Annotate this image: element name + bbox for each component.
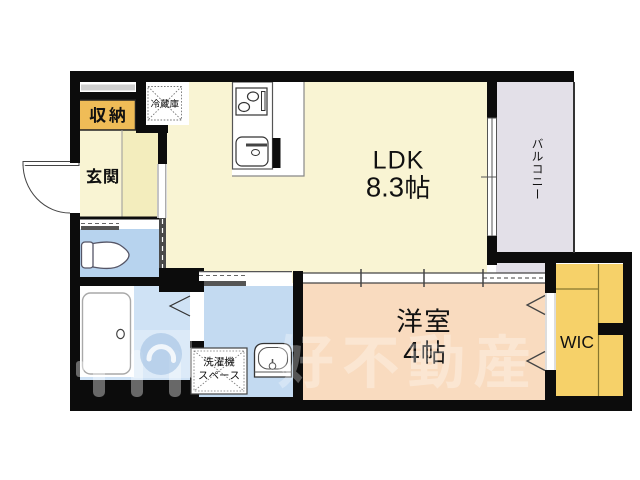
svg-text:WIC: WIC bbox=[560, 332, 594, 352]
svg-text:8.3: 8.3 bbox=[366, 172, 404, 203]
svg-text:LDK: LDK bbox=[373, 147, 425, 175]
